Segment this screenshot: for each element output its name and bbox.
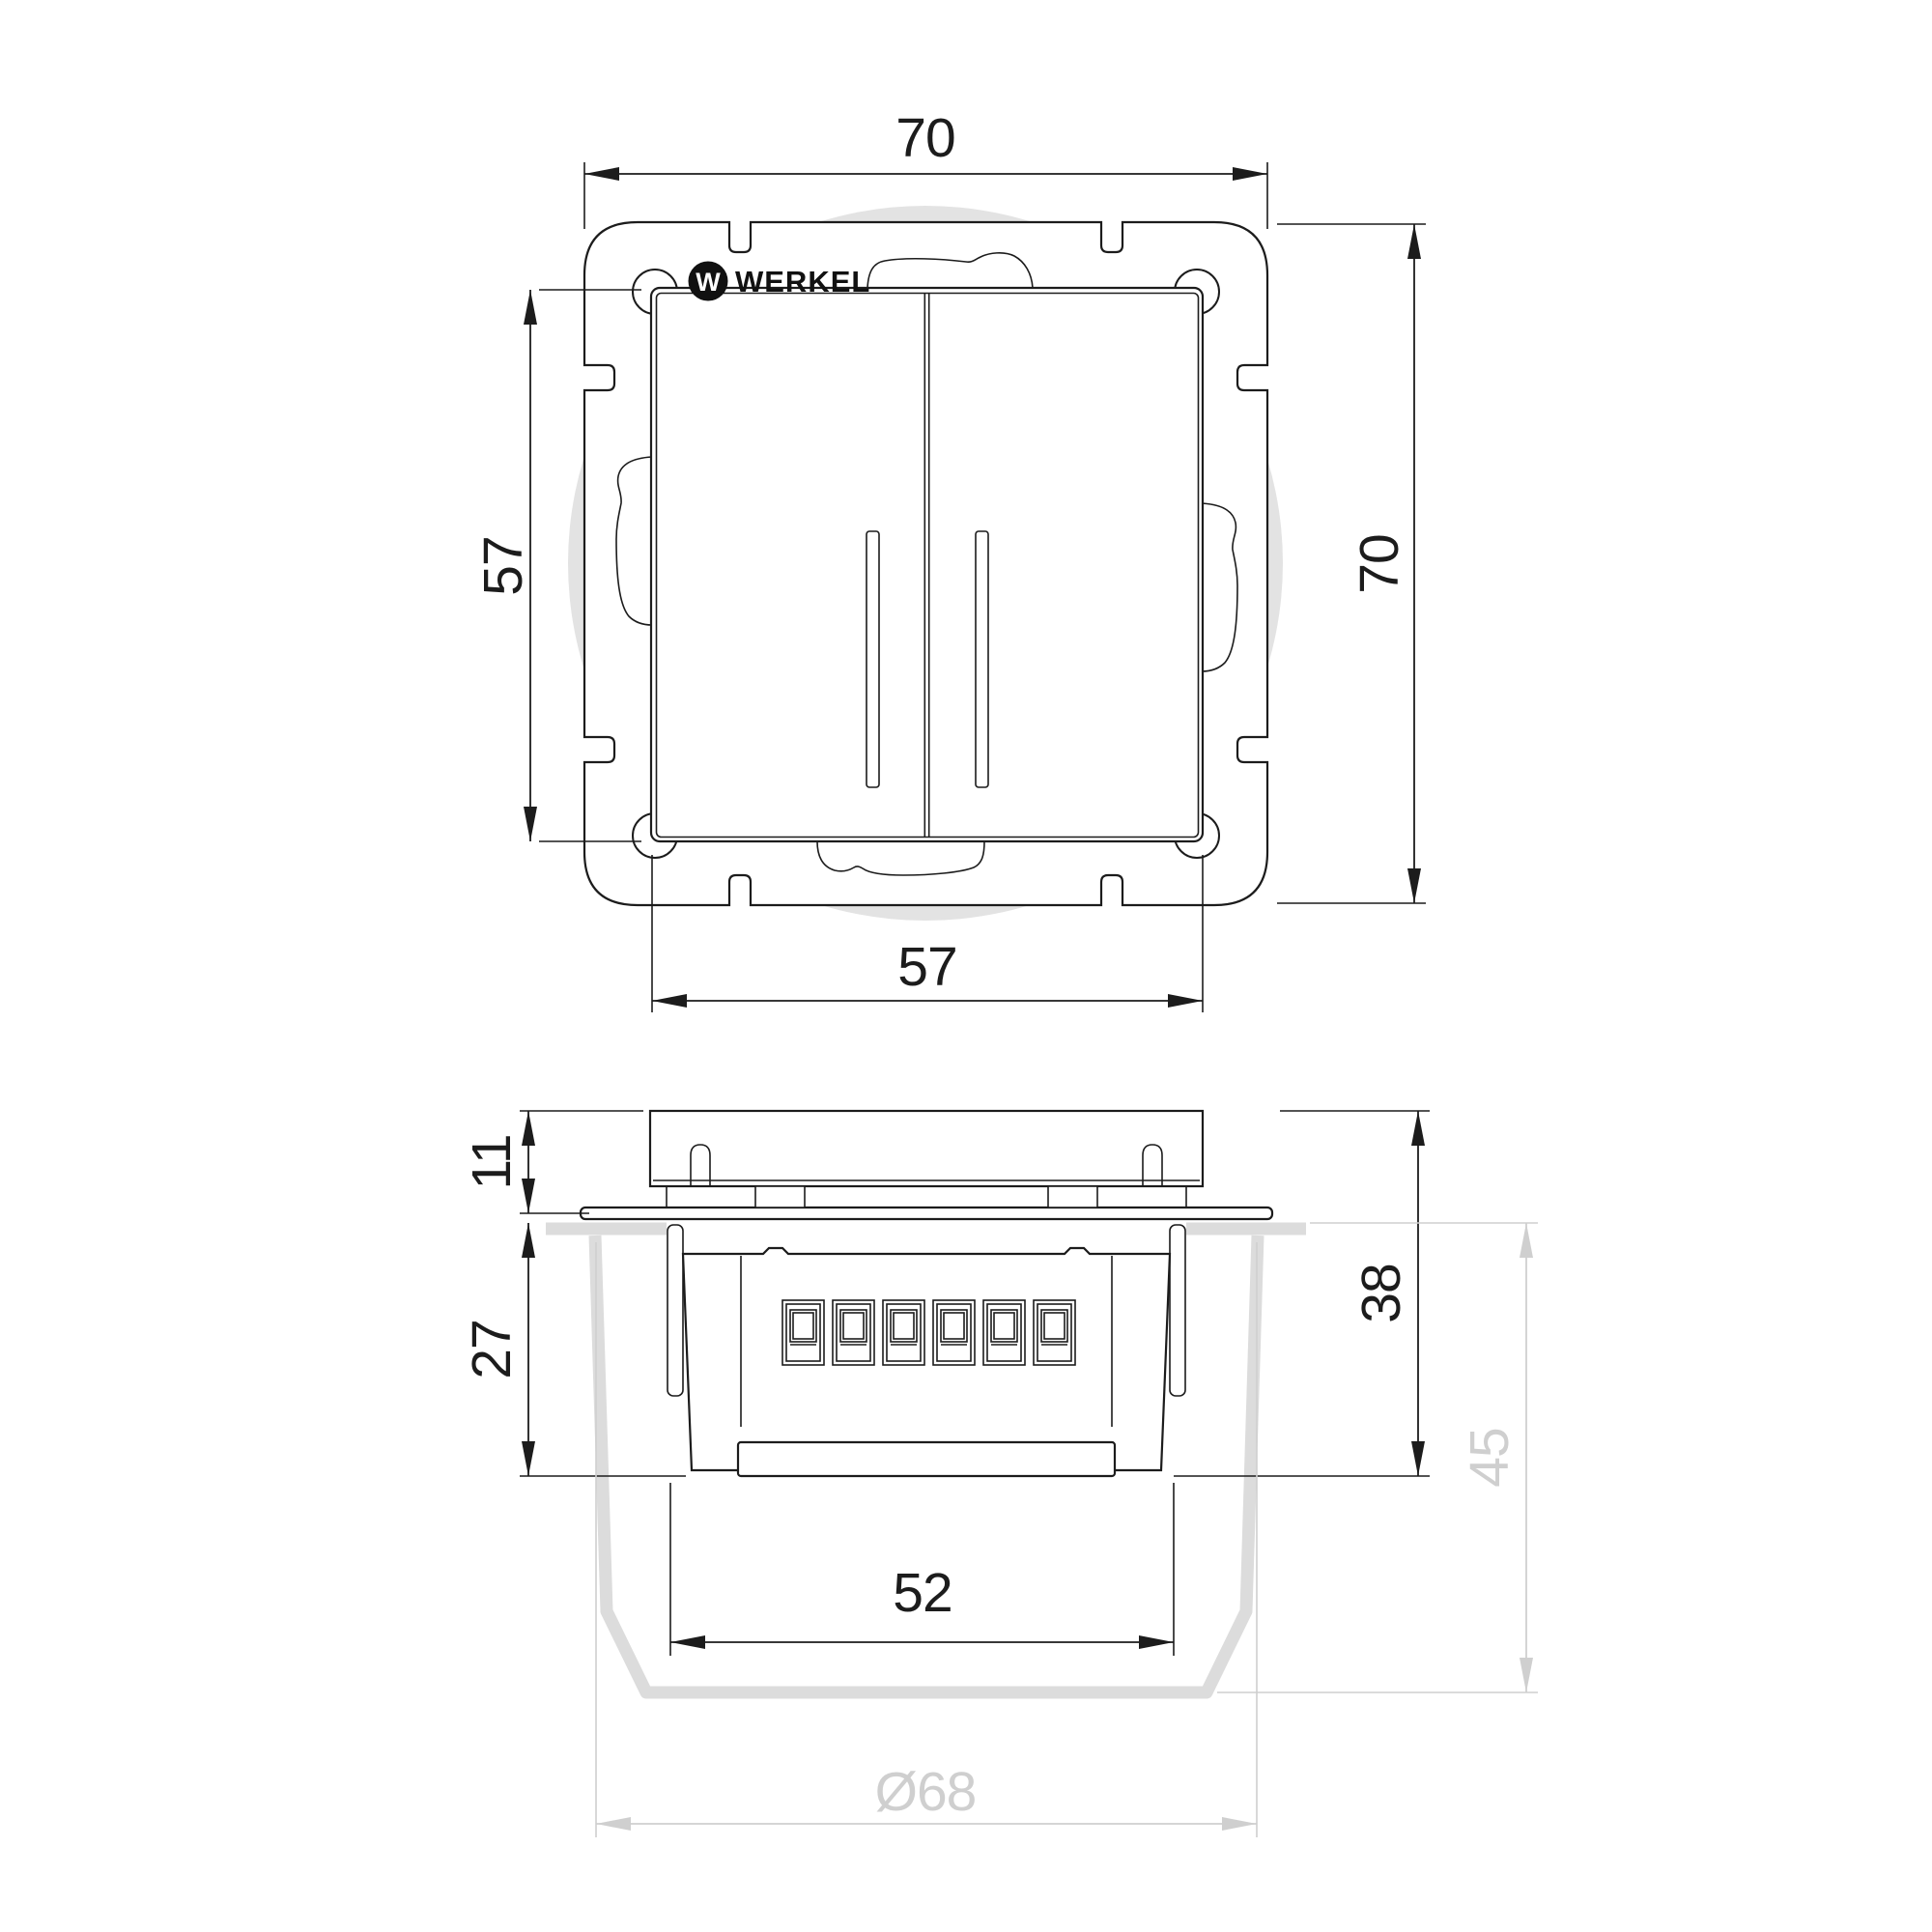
clip-ear-right [1170,1225,1185,1396]
mechanism-body [683,1248,1170,1470]
dim-box-diameter-label: Ø68 [875,1761,977,1823]
claw-left [616,457,652,625]
dim-frame-width-label: 70 [895,107,954,169]
dim-frame-height-label: 70 [1349,534,1410,593]
clip-ear-left [668,1225,683,1396]
claw-right [1202,503,1237,671]
mechanism-base [738,1442,1115,1476]
metal-plate [581,1207,1272,1219]
claw-bottom [817,841,984,875]
dim-box-depth-label: 45 [1459,1428,1520,1487]
latch-right [1048,1186,1097,1207]
technical-drawing-page: W WERKEL 70 57 57 70 [0,0,1932,1932]
werkel-logo: W WERKEL [689,262,871,301]
indicator-slot-right [976,531,988,787]
dim-rocker-width-label: 57 [897,936,956,998]
dim-total-depth-label: 38 [1350,1264,1412,1322]
logo-text: WERKEL [735,265,870,298]
switch-dimension-drawing: W WERKEL 70 57 57 70 [0,0,1932,1932]
indicator-slot-left [867,531,879,787]
dim-rocker-height-label: 57 [472,536,534,595]
dim-mechanism-depth-label: 27 [461,1320,523,1378]
dim-rocker-protrusion-label: 11 [461,1134,523,1189]
dim-mechanism-width-label: 52 [893,1562,952,1624]
rocker-block [651,288,1203,841]
rocker-side [650,1111,1203,1186]
logo-mark-letter: W [696,268,721,297]
front-view: W WERKEL [568,206,1283,921]
latch-left [755,1186,805,1207]
